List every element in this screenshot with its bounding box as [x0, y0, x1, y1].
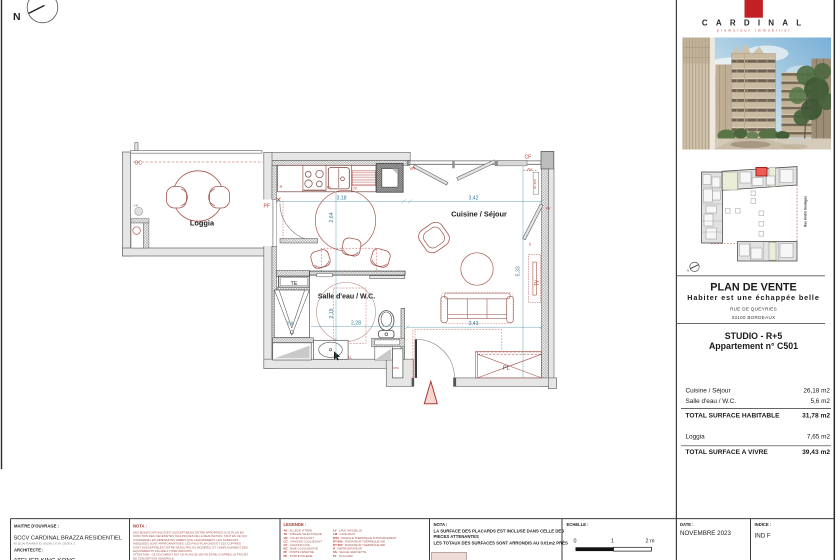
svg-text:VR: VR	[410, 166, 416, 171]
svg-text:5,6 m2: 5,6 m2	[810, 398, 830, 405]
svg-text:N: N	[687, 269, 689, 273]
svg-text:Loggia: Loggia	[190, 219, 215, 228]
svg-text:STUDIO - R+5: STUDIO - R+5	[725, 331, 783, 341]
svg-text:RT 800: RT 800	[533, 179, 537, 189]
svg-text:Salle d'eau / W.C.: Salle d'eau / W.C.	[686, 398, 737, 405]
svg-text:40 QUAI RAMBAUD, 69286 LYON CE: 40 QUAI RAMBAUD, 69286 LYON CEDEX 2	[14, 541, 76, 545]
svg-text:Salle d'eau / W.C.: Salle d'eau / W.C.	[318, 294, 375, 301]
svg-text:PLAN DE VENTE: PLAN DE VENTE	[710, 282, 796, 294]
svg-text:AV: AV	[527, 167, 532, 172]
svg-text:ARCHITECTE :: ARCHITECTE :	[14, 548, 44, 553]
svg-text:0,9: 0,9	[287, 321, 294, 326]
svg-text:LV: LV	[353, 185, 358, 190]
svg-text:CF: CF	[525, 155, 532, 161]
svg-text:5,33: 5,33	[516, 266, 522, 276]
svg-text:3,42: 3,42	[468, 196, 478, 202]
svg-text:GC: GC	[135, 160, 143, 166]
svg-text:TV: TV	[535, 279, 541, 286]
svg-text:TOTAL SURFACE A VIVRE: TOTAL SURFACE A VIVRE	[686, 449, 769, 456]
svg-text:LA SURFACE DES PLACARDS EST IN: LA SURFACE DES PLACARDS EST INCLUSE DANS…	[434, 528, 565, 533]
svg-text:3,18: 3,18	[336, 196, 346, 202]
svg-text:MAITRE D'OUVRAGE :: MAITRE D'OUVRAGE :	[14, 524, 59, 529]
svg-text:33100 BORDEAUX: 33100 BORDEAUX	[731, 315, 775, 320]
svg-text:Appartement n° C501: Appartement n° C501	[709, 341, 798, 351]
svg-text:26,18 m2: 26,18 m2	[803, 388, 830, 395]
svg-text:PIECES ATTENANTES: PIECES ATTENANTES	[434, 534, 479, 539]
svg-text:PL: PL	[503, 366, 510, 372]
svg-text:3,43: 3,43	[468, 321, 478, 327]
svg-text:39,43 m2: 39,43 m2	[802, 449, 830, 456]
svg-text:PF: PF	[264, 204, 270, 210]
svg-text:ECHELLE :: ECHELLE :	[567, 522, 589, 527]
svg-text:Loggia: Loggia	[686, 434, 706, 441]
svg-text:2 m: 2 m	[646, 539, 655, 545]
svg-text:31,78 m2: 31,78 m2	[802, 413, 830, 420]
svg-text:AV: AV	[546, 207, 551, 211]
svg-text:NOTA :: NOTA :	[434, 522, 448, 527]
svg-text:0: 0	[574, 539, 577, 545]
svg-text:IND F: IND F	[755, 533, 771, 540]
svg-text:CARDINAL: CARDINAL	[702, 19, 809, 28]
svg-text:DATE :: DATE :	[680, 522, 694, 527]
svg-text:RUE DE QUEYRIES: RUE DE QUEYRIES	[730, 306, 777, 311]
svg-text:Ev: Ev	[327, 186, 331, 190]
svg-text:Rue André Soulages: Rue André Soulages	[804, 196, 808, 227]
svg-text:1: 1	[611, 539, 614, 545]
svg-text:Habiter est une échappée belle: Habiter est une échappée belle	[687, 293, 819, 302]
svg-text:PL : PLACARD: PL : PLACARD	[333, 554, 353, 558]
svg-text:LES TOTAUX DES SURFACES SONT A: LES TOTAUX DES SURFACES SONT ARRONDIS AU…	[434, 541, 569, 546]
svg-text:2,28: 2,28	[351, 321, 361, 327]
svg-text:PE : PORTE PALIERE: PE : PORTE PALIERE	[284, 554, 313, 558]
svg-text:3-M: 3-M	[134, 204, 138, 208]
svg-text:2,19: 2,19	[329, 308, 335, 318]
svg-text:INDICE :: INDICE :	[755, 522, 772, 527]
svg-text:Cuisine / Séjour: Cuisine / Séjour	[451, 210, 507, 219]
svg-text:LEGENDE :: LEGENDE :	[284, 522, 307, 527]
svg-text:NOVEMBRE 2023: NOVEMBRE 2023	[680, 530, 731, 537]
svg-text:TOTAL SURFACE HABITABLE: TOTAL SURFACE HABITABLE	[686, 413, 781, 420]
svg-text:ST: ST	[528, 242, 532, 246]
svg-text:Cuisine / Séjour: Cuisine / Séjour	[686, 388, 732, 395]
svg-text:MTA: MTA	[393, 366, 399, 370]
svg-text:7,65 m2: 7,65 m2	[807, 434, 831, 441]
svg-text:NOTA :: NOTA :	[133, 524, 147, 529]
svg-text:TE: TE	[291, 281, 298, 287]
svg-text:promoteur immobilier: promoteur immobilier	[717, 28, 792, 32]
svg-text:2,64: 2,64	[329, 212, 335, 222]
svg-text:LL: LL	[349, 356, 353, 360]
svg-text:R: R	[280, 184, 283, 189]
svg-text:DE CONCEPTION GENERALE.: DE CONCEPTION GENERALE.	[133, 556, 175, 560]
svg-text:N: N	[13, 11, 21, 23]
